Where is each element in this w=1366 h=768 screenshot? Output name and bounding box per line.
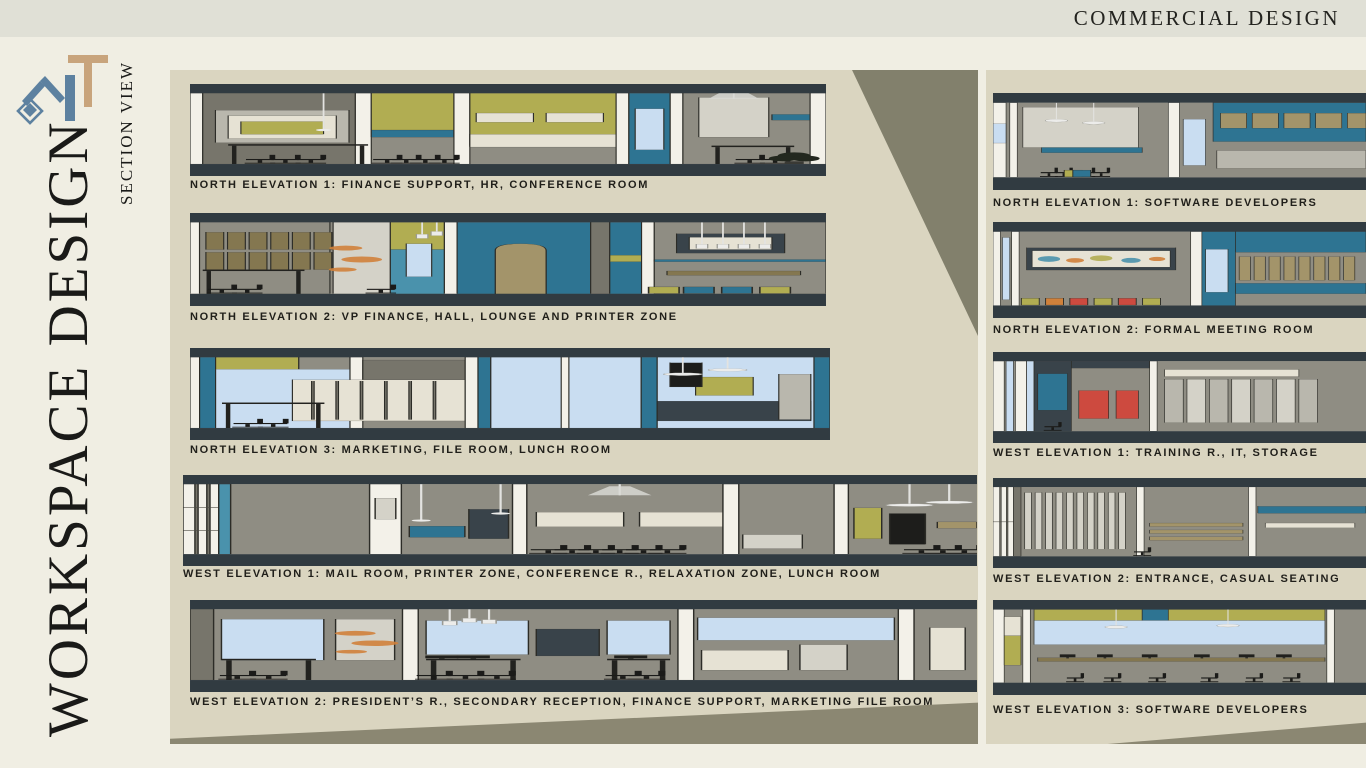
elevation-label: NORTH ELEVATION 3: MARKETING, FILE ROOM,… bbox=[190, 443, 830, 457]
page-title: COMMERCIAL DESIGN bbox=[1074, 6, 1340, 31]
elevation-drawing bbox=[993, 222, 1366, 318]
top-strip: COMMERCIAL DESIGN bbox=[0, 0, 1366, 37]
elevation-drawing bbox=[993, 478, 1366, 568]
elevation-drawing bbox=[993, 352, 1366, 443]
elevation-drawing bbox=[183, 475, 977, 566]
section-subtitle: SECTION VIEW bbox=[117, 61, 137, 205]
elevation-drawing bbox=[993, 600, 1366, 695]
elevation-drawing bbox=[190, 348, 830, 440]
slide-title: WORKSPACE DESIGN bbox=[36, 119, 101, 737]
decorative-wedge-bottom-right bbox=[986, 718, 1366, 744]
slide: COMMERCIAL DESIGN SECTION VIEW WORKSPACE… bbox=[0, 0, 1366, 768]
elevation-label: WEST ELEVATION 1: MAIL ROOM, PRINTER ZON… bbox=[183, 567, 977, 581]
elevation-label: WEST ELEVATION 2: ENTRANCE, CASUAL SEATI… bbox=[993, 572, 1366, 586]
elevation-label: NORTH ELEVATION 1: SOFTWARE DEVELOPERS bbox=[993, 196, 1366, 210]
elevation-label: WEST ELEVATION 2: PRESIDENT’S R., SECOND… bbox=[190, 695, 970, 709]
elevation-label: NORTH ELEVATION 2: FORMAL MEETING ROOM bbox=[993, 323, 1366, 337]
decorative-wedge-top bbox=[844, 70, 978, 336]
elevation-label: NORTH ELEVATION 1: FINANCE SUPPORT, HR, … bbox=[190, 178, 830, 192]
right-elevations-panel: NORTH ELEVATION 1: SOFTWARE DEVELOPERSNO… bbox=[986, 70, 1366, 744]
elevation-label: WEST ELEVATION 1: TRAINING R., IT, STORA… bbox=[993, 446, 1366, 460]
left-rail: SECTION VIEW WORKSPACE DESIGN bbox=[0, 37, 170, 768]
elevation-label: WEST ELEVATION 3: SOFTWARE DEVELOPERS bbox=[993, 703, 1366, 717]
elevation-drawing bbox=[190, 600, 977, 692]
elevation-drawing bbox=[190, 213, 826, 306]
left-elevations-panel: NORTH ELEVATION 1: FINANCE SUPPORT, HR, … bbox=[170, 70, 978, 744]
elevation-drawing bbox=[993, 93, 1366, 190]
elevation-drawing bbox=[190, 84, 826, 176]
elevation-label: NORTH ELEVATION 2: VP FINANCE, HALL, LOU… bbox=[190, 310, 830, 324]
